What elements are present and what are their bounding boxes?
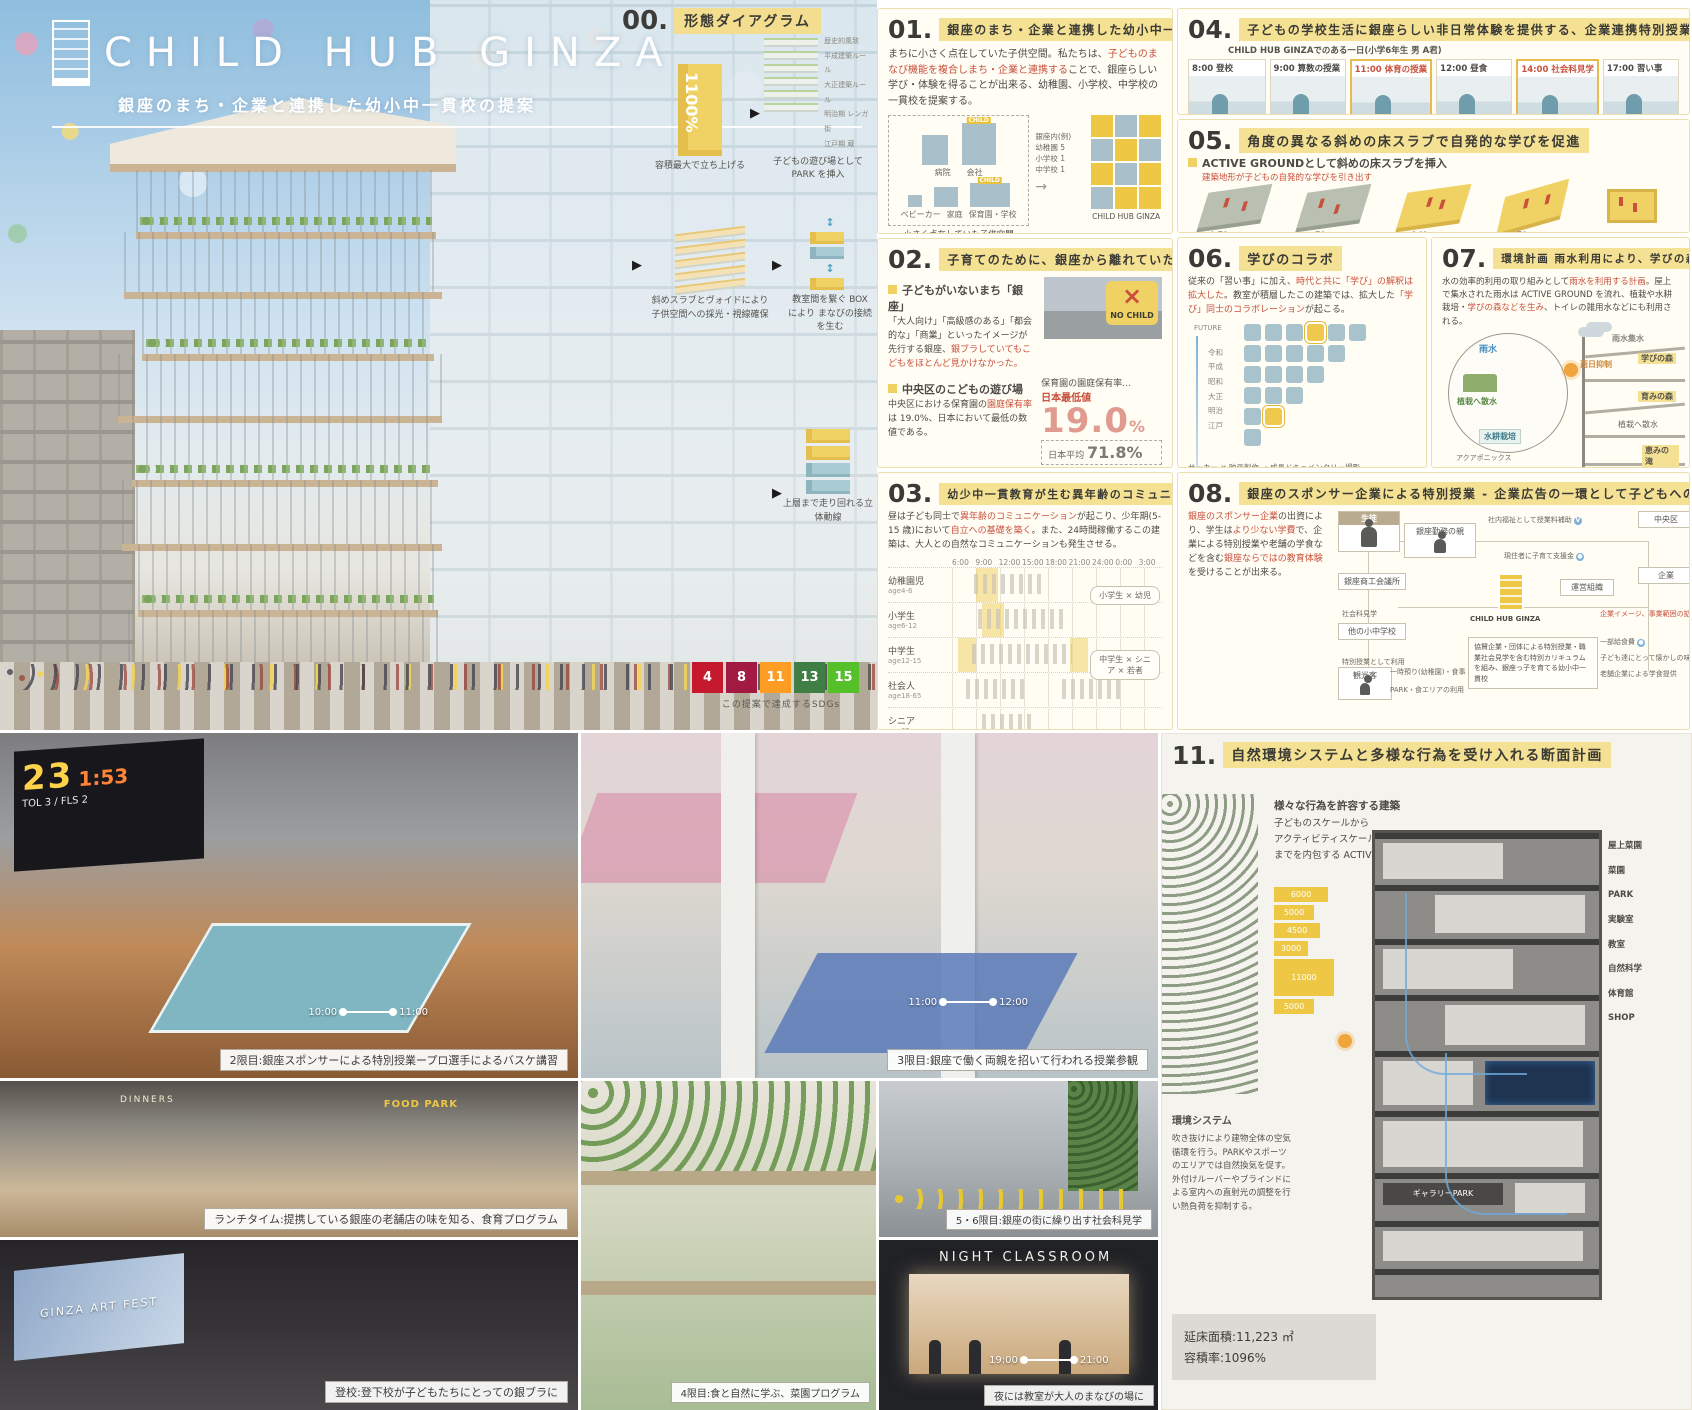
school-icon: CHILD (970, 183, 1010, 207)
section-title: 自然環境システムと多様な行為を受け入れる断面計画 (1223, 742, 1611, 768)
scoreboard-line: TOL 3 (22, 797, 51, 810)
aquaponics-label: アクアポニックス (1456, 453, 1511, 463)
figure (929, 1340, 941, 1374)
section-number: 05. (1188, 128, 1232, 153)
diagram-step-circulation: 上層まで走り回れる立体動線 (782, 426, 874, 525)
link-arrow-icon: ↕ (825, 262, 834, 275)
logo-building-icon (52, 20, 90, 86)
airflow-arrow (1405, 893, 1527, 1075)
building-floor (142, 292, 434, 361)
era-label: 平成 (1208, 360, 1223, 375)
sponsor-org-diagram: 生徒 銀座勤務の親 社内福祉として授業料補助V 現住者に子育て支援金● 中央区 … (1338, 511, 1679, 699)
park-slab (764, 90, 818, 99)
schedule-cell: 8:00 登校登校中のギャラリー通り (1188, 59, 1266, 115)
home-icon (934, 187, 958, 207)
photo-caption: 2限目:銀座スポンサーによる特別授業ープロ選手によるバスケ講習 (220, 1049, 568, 1071)
scene-illustration (1518, 77, 1597, 115)
section-number: 08. (1188, 481, 1232, 506)
park-slab (764, 64, 818, 73)
era-label: 昭和 (1208, 375, 1223, 390)
beam (581, 1171, 876, 1185)
park-slab (764, 51, 818, 60)
column (721, 733, 755, 1078)
section-number: 06. (1188, 246, 1232, 271)
step-caption: 上層まで走り回れる立体動線 (782, 498, 874, 525)
render-field-trip: 5・6限目:銀座の街に繰り出す社会科見学 (879, 1081, 1158, 1237)
schedule-cell: 17:00 習い事習い事を楽しむ (1603, 59, 1679, 115)
org-note: 企業イメージ、事業範囲の拡大 (1600, 609, 1690, 619)
spray-label: 植栽へ散水 (1457, 396, 1497, 407)
section-04-card: 04. 子どもの学校生活に銀座らしい非日常体験を提供する、企業連携特別授業 CH… (1177, 8, 1690, 115)
sdg-goal-icon: 13 (794, 662, 825, 693)
play-deck (581, 793, 857, 883)
curriculum-note: 協賛企業・団体による特別授業・職業社会見学を含む特別カリキュラムを組み、銀座っ子… (1468, 637, 1598, 689)
era-label: 明治 (1208, 404, 1223, 419)
stat-value: 1096% (1224, 1351, 1266, 1365)
arrow-right-icon: ▶ (750, 106, 760, 121)
arrow-right-icon: → (1035, 179, 1084, 195)
area-stats: 延床面積:11,223 ㎡ 容積率:1096% (1172, 1314, 1376, 1380)
person-icon (1434, 539, 1446, 553)
timetable-row: シニアage65- (888, 707, 1162, 730)
person-icon (1360, 683, 1370, 695)
section-number: 11. (1172, 743, 1216, 768)
green-wall-photo (1162, 794, 1258, 1094)
presentation-board: CHILD HUB GINZA 銀座のまち・企業と連携した幼小中一貫校の提案 4… (0, 0, 1692, 1410)
section-08-card: 08. 銀座のスポンサー企業による特別授業 - 企業広告の一環として子どもへの授… (1177, 472, 1690, 730)
photo-caption: 3限目:銀座で働く両親を招いて行われる授業参観 (887, 1049, 1148, 1071)
section-number: 00. (622, 6, 668, 36)
figure (969, 1340, 981, 1374)
highlight-band (1070, 638, 1088, 672)
schedule-cell: 14:00 社会科見学商品開発の見学 (1516, 59, 1599, 115)
era-label: 大正 (1208, 390, 1223, 405)
org-note: 現住者に子育て支援金● (1504, 551, 1584, 561)
section-07-body: 水の効率的利用の取り組みとして雨水を利用する計画。屋上で集水された雨水は ACT… (1442, 276, 1679, 329)
cross-icon: × (1106, 281, 1158, 311)
slope-cell: 14°1/4勾配ひととはなす (1387, 189, 1480, 233)
daily-schedule: 8:00 登校登校中のギャラリー通り 9:00 算数の授業通常授業 11:00 … (1188, 59, 1679, 115)
child-tag: CHILD (977, 177, 1001, 184)
rainwater-diagram: 雨水 植栽へ散水 水耕栽培 アクアポニックス 雨水集水 西日抑制 学びの森 育み… (1442, 333, 1679, 459)
section-title: 子育てのために、銀座から離れていた人々 (939, 248, 1173, 271)
slope-tile (1197, 184, 1272, 229)
dinners-sign: DINNERS (120, 1095, 175, 1105)
render-art-fest: GINZA ART FEST 登校:登下校が子どもたちにとっての銀ブラに (0, 1240, 578, 1410)
section-number: 07. (1442, 246, 1486, 271)
floor-labels: 屋上菜園 菜園 PARK 実験室 教室 自然科学 体育館 SHOP (1608, 834, 1642, 1031)
section-number: 03. (888, 481, 932, 506)
planter (1463, 374, 1497, 392)
timeline-overlay: 19:0021:00 (989, 1355, 1109, 1366)
hub-tower-diagram (1091, 115, 1161, 209)
section-number: 02. (888, 247, 932, 272)
building-floor (136, 170, 436, 239)
photo-caption: ランチタイム:提携している銀座の老舗店の味を知る、食育プログラム (204, 1208, 568, 1230)
art-fest-sign: GINZA ART FEST (40, 1294, 158, 1319)
scene-illustration (1189, 76, 1265, 115)
sdg-goal-icon: 4 (692, 662, 723, 693)
diagram-label: 病院 (935, 167, 951, 178)
collab-callout: 小学生 × 幼児 (1090, 586, 1160, 605)
class-box (810, 278, 844, 290)
sdg-goal-icon: 11 (760, 662, 791, 693)
person-icon (1361, 527, 1377, 547)
org-note: 社会科見学 (1342, 609, 1377, 619)
nurture-forest-label: 育みの森 (1638, 391, 1676, 402)
green-wall (1068, 1081, 1138, 1191)
time-axis: 6:009:0012:00 15:0018:0021:00 24:000:003… (952, 558, 1162, 567)
section-05-card: 05. 角度の異なる斜めの床スラブで自発的な学びを促進 ACTIVE GROUN… (1177, 119, 1690, 233)
child-hub-building (118, 100, 448, 692)
section-number: 04. (1188, 17, 1232, 42)
room (1383, 1231, 1583, 1261)
hospital-icon (922, 135, 948, 165)
connector-line (1648, 541, 1649, 671)
section-02-card: 02. 子育てのために、銀座から離れていた人々 子どもがいないまち「銀座」 「大… (877, 238, 1173, 468)
avg-label: 日本平均 (1048, 451, 1084, 461)
hub-label: CHILD HUB GINZA (1470, 615, 1540, 623)
slope-cell: 27°1/2勾配みる・工夫する (1486, 189, 1579, 233)
diagram-step-park: 歴史的風致 平成建築ルール 大正建築ルール 明治期 レンガ街 江戸期 蔵 子ども… (764, 34, 872, 183)
floor-slab (1375, 1269, 1599, 1275)
scattered-child-space-diagram: CHILD 病院会社 CHILD ベビーカー家庭保育園・学校 (888, 115, 1029, 226)
arrow-right-icon: ▶ (632, 258, 642, 273)
slope-cell: 協力する (1586, 189, 1679, 233)
floor-slab (1375, 1221, 1599, 1227)
office-icon: CHILD (962, 123, 996, 165)
sdgs-caption: この提案で達成するSDGs (692, 697, 870, 710)
section-01-body: まちに小さく点在していた子供空間。私たちは、子どものまなび機能を複合しまち・企業… (888, 47, 1162, 109)
learning-collab-chart: FUTURE 令和 平成 昭和 大正 明治 江戸 PAST (1188, 324, 1416, 442)
diagram-label: 保育園・学校 (969, 209, 1017, 220)
room (1383, 843, 1503, 879)
org-node: 運営組織 (1560, 579, 1614, 596)
active-ground-note: 建築地形が子どもの自発的な学びを引き出す (1202, 171, 1679, 183)
schedule-cell: 11:00 体育の授業NBA選手とバスケ (1350, 59, 1433, 115)
avg-value: 71.8% (1087, 443, 1143, 462)
sun-icon (1564, 363, 1578, 377)
art-fest-screen: GINZA ART FEST (14, 1253, 184, 1361)
collect-label: 雨水集水 (1612, 333, 1644, 344)
slope-cell: 7°1/8勾配感じる (1287, 189, 1380, 233)
era-label: 令和 (1208, 346, 1223, 361)
section-01-card: 01. 銀座のまち・企業と連携した幼小中一貫校へ まちに小さく点在していた子供空… (877, 8, 1173, 234)
scene-illustration (1352, 77, 1431, 115)
sdgs-block: 4 8 11 13 15 この提案で達成するSDGs (692, 662, 870, 710)
ginza-stats-note: 銀座内(例)幼稚園 5小学校 1中学校 1 → (1035, 115, 1084, 234)
scoreboard: 23 1:53 TOL 3 / FLS 2 (14, 738, 204, 871)
render-night-classroom: NIGHT CLASSROOM 19:0021:00 夜には教室が大人のまなびの… (879, 1240, 1158, 1410)
arrow-right-icon: ▶ (772, 486, 782, 501)
hub-tower-label: CHILD HUB GINZA (1090, 212, 1162, 221)
org-note: 特別授業として利用 (1342, 657, 1405, 667)
level-slab (806, 446, 850, 460)
dimension-blocks: 6000 5000 4500 3000 11000 5000 (1274, 884, 1334, 1017)
diagram-step-volume: 1100% 容積最大で立ち上げる (650, 64, 750, 174)
stat-title: 保育園の園庭保有率… (1041, 376, 1162, 389)
company-node: 企業 (1638, 567, 1690, 584)
connector-line (1368, 541, 1369, 671)
step-caption: 教室間を繋ぐ BOX により まなびの接続を生む (788, 294, 872, 335)
section-title: 学びのコラボ (1239, 246, 1342, 271)
diagram-step-box-link: ↕ ↕ 教室間を繋ぐ BOX により まなびの接続を生む (788, 216, 872, 335)
parent-node: 銀座勤務の親 (1404, 523, 1476, 558)
section-03-body: 昼は子ども同士で異年齢のコミュニケーションが起こり、少年期(5-15 歳)におい… (888, 511, 1162, 553)
learning-tiles: 学びのコラボ (1244, 324, 1394, 468)
active-ground-subtitle: ACTIVE GROUNDとして斜めの床スラブを挿入 (1188, 155, 1679, 171)
step-caption: 容積最大で立ち上げる (650, 160, 750, 174)
cloud-icon (1578, 327, 1604, 337)
beam (581, 1281, 876, 1295)
building-floor (122, 480, 442, 551)
section-00-form-diagram: 00. 形態ダイアグラム 1100% 容積最大で立ち上げる ▶ 歴史的風致 平成… (622, 6, 874, 656)
activity-marks (978, 609, 1068, 629)
timeline-overlay: 11:0012:00 (908, 997, 1028, 1008)
timeline-overlay: 10:0011:00 (308, 1007, 428, 1018)
hydroponics-label: 水耕栽培 (1479, 429, 1521, 444)
no-child-body: 「大人向け」「高級感のある」「都会的な」「商業」といったイメージが先行する銀座、… (888, 316, 1036, 372)
render-food-hall: DINNERS FOOD PARK ランチタイム:提携している銀座の老舗店の味を… (0, 1081, 578, 1237)
scoreboard-line: FLS 2 (61, 794, 88, 807)
section-number: 01. (888, 17, 932, 42)
timetable-row: 小学生age6-12 (888, 602, 1162, 637)
child-tag: CHILD (966, 117, 990, 124)
stat-value: 11,223 ㎡ (1236, 1330, 1294, 1344)
other-school-node: 他の小中学校 (1338, 623, 1406, 640)
render-basketball-class: 23 1:53 TOL 3 / FLS 2 10:0011:00 2限目:銀座ス… (0, 733, 578, 1078)
park-slab (764, 103, 818, 112)
org-note: 老舗企業による学食提供 (1600, 669, 1677, 679)
building-floor (138, 544, 438, 617)
no-child-label: NO CHILD (1106, 311, 1158, 320)
activity-marks (972, 644, 1072, 664)
class-box (810, 247, 844, 259)
era-label: 江戸 (1208, 419, 1223, 434)
park-slab (764, 38, 818, 47)
scene-illustration (1271, 76, 1345, 115)
rain-label: 雨水 (1479, 342, 1497, 355)
night-classroom-sign: NIGHT CLASSROOM (939, 1250, 1112, 1265)
diagram-label: ベビーカー (901, 209, 941, 220)
slope-tile (1396, 184, 1471, 229)
sdg-goal-icon: 8 (726, 662, 757, 693)
slope-tile (1297, 184, 1372, 229)
era-axis: FUTURE 令和 平成 昭和 大正 明治 江戸 PAST (1196, 324, 1240, 468)
section-title: 形態ダイアグラム (674, 8, 821, 34)
scene-illustration (1437, 76, 1511, 115)
activity-marks (966, 679, 1026, 699)
floor-slab (1375, 833, 1599, 839)
ginza-street-photo: × NO CHILD (1044, 277, 1162, 339)
poster-title: CHILD HUB GINZA (104, 30, 677, 76)
scoreboard-score: 23 (22, 755, 73, 799)
stroller-icon (908, 195, 922, 207)
diagram-caption: 小さく点在していた子供空間 (888, 228, 1029, 234)
children-yellow-hats (889, 1189, 1129, 1209)
org-note: 子ども達にとって懐かしの味に (1600, 653, 1690, 663)
building-floor (118, 354, 442, 423)
collab-callout: 中学生 × シニア × 若者 (1090, 650, 1160, 680)
sun-shade-label: 西日抑制 (1580, 359, 1612, 370)
spray2-label: 植栽へ散水 (1618, 419, 1658, 430)
org-note: 社内福祉として授業料補助V (1488, 515, 1582, 525)
volume-block: 1100% (678, 64, 722, 156)
floor-slab (1375, 885, 1599, 891)
future-label: FUTURE (1194, 324, 1222, 332)
environment-system-text: 環境システム 吹き抜けにより建物全体の空気循環を行う。PARKやスポーツのエリア… (1172, 1114, 1292, 1215)
stat-label: 延床面積 (1184, 1330, 1232, 1344)
park-slab (764, 77, 818, 86)
no-child-badge: × NO CHILD (1106, 281, 1158, 325)
step-caption: 子どもの遊び場として PARK を挿入 (764, 156, 872, 183)
playground-body: 中央区における保育園の園庭保有率は 19.0%、日本において最低の数値である。 (888, 399, 1033, 441)
section-06-card: 06. 学びのコラボ 従来の「習い事」に加え、時代と共に「学び」の解釈は拡大した… (1177, 237, 1427, 468)
section-title: 角度の異なる斜めの床スラブで自発的な学びを促進 (1239, 128, 1589, 153)
garden-rate-stat: 保育園の園庭保有率… 日本最低値 19.0% 日本平均 71.8% (1041, 376, 1162, 465)
day-in-life-subtitle: CHILD HUB GINZAでのある一日(小学6年生 男 A君) (1228, 44, 1679, 56)
render-garden-program: 4限目:食と自然に学ぶ、菜園プログラム (581, 1081, 876, 1410)
diagram-label: 家庭 (947, 209, 963, 220)
section-03-card: 03. 幼少中一貫教育が生む異年齢のコミュニケーション 昼は子ども同士で異年齢の… (877, 472, 1173, 730)
level-slab (806, 429, 850, 443)
schedule-cell: 12:00 昼食老舗の逸品料理 (1436, 59, 1512, 115)
time-arrow (1196, 336, 1198, 468)
24h-timetable: 6:009:0012:00 15:0018:0021:00 24:000:003… (888, 558, 1162, 730)
ward-node: 中央区 (1638, 511, 1690, 528)
photo-caption: 4限目:食と自然に学ぶ、菜園プログラム (671, 1382, 870, 1403)
photo-caption: 登校:登下校が子どもたちにとっての銀ブラに (325, 1381, 568, 1403)
building-floor (124, 232, 442, 299)
building-section-drawing: ギャラリーPARK (1372, 830, 1602, 1300)
level-slab (806, 463, 850, 477)
step-caption: 斜めスラブとヴォイドにより 子供空間への採光・視線確保 (650, 295, 770, 322)
link-arrow-icon: ↕ (825, 216, 834, 229)
slope-tile (1497, 179, 1569, 233)
activity-marks (974, 574, 1044, 594)
diagram-step-slant: 斜めスラブとヴォイドにより 子供空間への採光・視線確保 (650, 226, 770, 322)
section-11-panel: 11. 自然環境システムと多様な行為を受け入れる断面計画 様々な行為を許容する建… (1161, 733, 1692, 1410)
section-title: 環境計画 雨水利用により、学びの森が生まれる (1493, 248, 1690, 269)
building-floor (132, 416, 438, 487)
sdg-goal-icon: 15 (828, 662, 859, 693)
sun-icon (1338, 1034, 1352, 1048)
stat-unit: % (1129, 417, 1145, 436)
schedule-cell: 9:00 算数の授業通常授業 (1270, 59, 1346, 115)
section-title: 子どもの学校生活に銀座らしい非日常体験を提供する、企業連携特別授業 (1239, 18, 1690, 41)
section-title: 銀座のまち・企業と連携した幼小中一貫校へ (939, 18, 1173, 41)
student-node: 生徒 (1338, 511, 1400, 552)
volume-label: 1100% (682, 72, 701, 133)
photo-caption: 夜には教室が大人のまなびの場に (984, 1385, 1154, 1406)
stat-label: 容積率 (1184, 1351, 1220, 1365)
section-title: 幼少中一貫教育が生む異年齢のコミュニケーション (939, 483, 1173, 505)
render-parents-visit: 11:0012:00 3限目:銀座で働く両親を招いて行われる授業参観 (581, 733, 1158, 1078)
subsection-title: 中央区のこどもの遊び場 (888, 381, 1033, 397)
scene-illustration (1604, 76, 1678, 115)
blessing-fall-label: 恵みの滝 (1642, 445, 1679, 467)
activity-marks (982, 714, 1032, 730)
era-rule-labels: 歴史的風致 平成建築ルール 大正建築ルール 明治期 レンガ街 江戸期 蔵 (824, 34, 872, 152)
detail-circle: 雨水 植栽へ散水 水耕栽培 (1448, 333, 1568, 453)
food-park-sign: FOOD PARK (384, 1099, 458, 1110)
slope-diagrams: 4.7°1/12勾配考える 7°1/8勾配感じる 14°1/4勾配ひととはなす … (1188, 189, 1679, 233)
tourist-node: 観光客 (1338, 667, 1392, 700)
subsection-title: 子どもがいないまち「銀座」 (888, 282, 1036, 314)
scoreboard-time: 1:53 (78, 764, 128, 791)
airflow-arrow (1445, 1053, 1567, 1215)
class-box (810, 232, 844, 244)
hub-building-icon (1498, 573, 1524, 611)
photo-caption: 5・6限目:銀座の街に繰り出す社会科見学 (946, 1209, 1152, 1230)
org-note: 一部給食費● (1600, 637, 1645, 647)
section-07-card: 07. 環境計画 雨水利用により、学びの森が生まれる 水の効率的利用の取り組みと… (1431, 237, 1690, 468)
slope-cell: 4.7°1/12勾配考える (1188, 189, 1281, 233)
org-note: PARK・食エリアの利用 (1390, 685, 1464, 695)
section-title: 銀座のスポンサー企業による特別授業 - 企業広告の一環として子どもへの授業・投資 (1239, 482, 1690, 505)
slope-tile (1607, 189, 1657, 223)
chamber-node: 銀座商工会議所 (1338, 573, 1406, 590)
arrow-right-icon: ▶ (772, 258, 782, 273)
section-06-body: 従来の「習い事」に加え、時代と共に「学び」の解釈は拡大した。教室が積層したこの建… (1188, 276, 1416, 318)
hanging-plants (581, 1081, 876, 1171)
section-08-body: 銀座のスポンサー企業の出資により、学生はより少ない学費で、企業による特別授業や老… (1188, 511, 1328, 699)
learning-forest-label: 学びの森 (1638, 353, 1676, 364)
activity-marks (1062, 679, 1122, 699)
level-slab (806, 480, 850, 494)
stat-value: 19.0 (1041, 401, 1129, 441)
